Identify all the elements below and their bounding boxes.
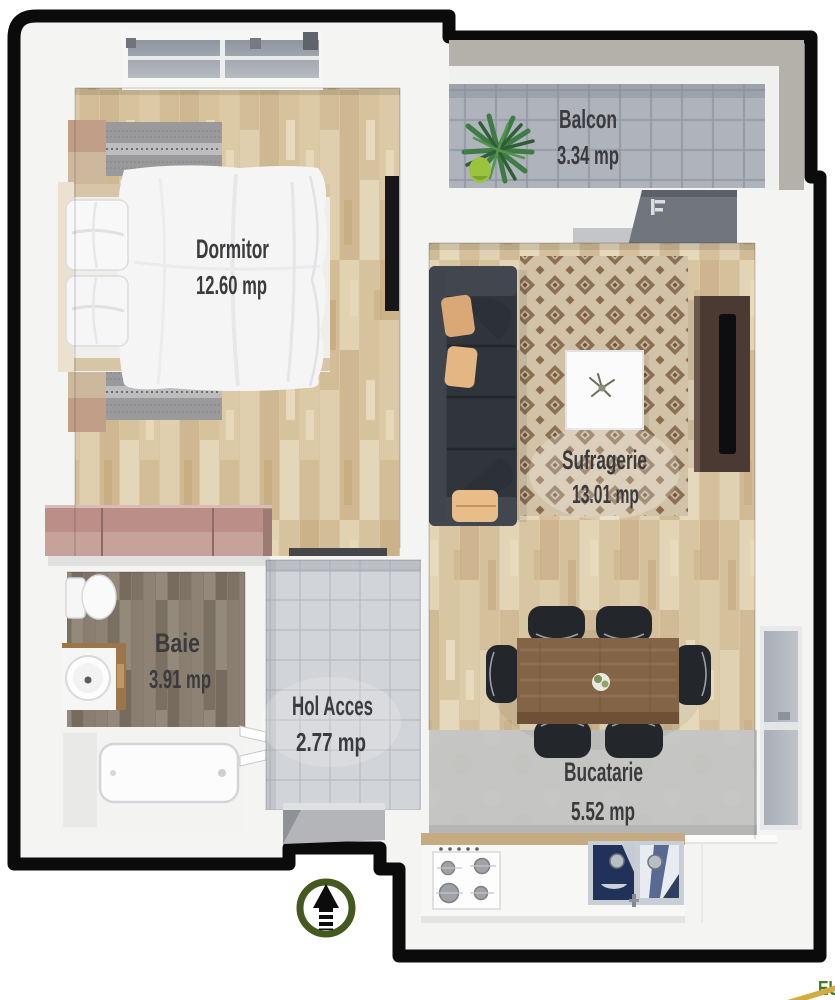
svg-text:2.77 mp: 2.77 mp [296,727,366,757]
svg-text:12.60 mp: 12.60 mp [196,270,267,300]
svg-text:3.34 mp: 3.34 mp [557,140,619,170]
svg-text:13.01 mp: 13.01 mp [572,479,639,509]
svg-text:Hol Acces: Hol Acces [292,691,373,721]
svg-text:Dormitor: Dormitor [196,234,269,264]
svg-text:Balcon: Balcon [559,104,617,134]
svg-text:Sufragerie: Sufragerie [562,445,647,475]
svg-text:Bucatarie: Bucatarie [564,757,643,787]
svg-text:5.52 mp: 5.52 mp [571,796,635,826]
svg-text:Baie: Baie [155,628,200,658]
svg-text:3.91 mp: 3.91 mp [149,664,211,694]
